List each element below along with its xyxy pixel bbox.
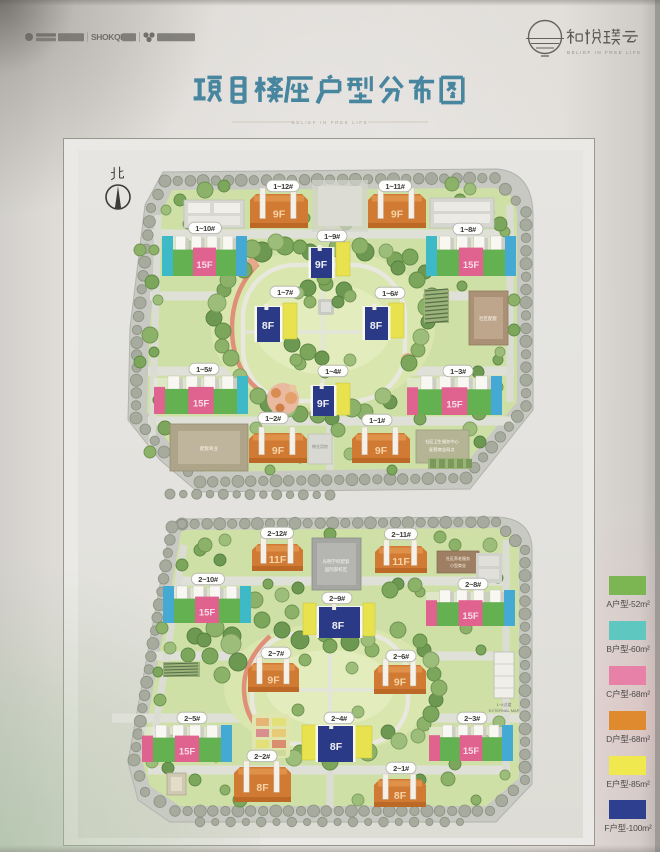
svg-text:1~8#: 1~8# <box>460 225 477 234</box>
svg-text:1~4#: 1~4# <box>325 367 342 376</box>
svg-text:9F: 9F <box>317 398 330 410</box>
svg-text:光明学校配套: 光明学校配套 <box>323 558 350 565</box>
svg-text:15F: 15F <box>193 399 210 410</box>
svg-text:15F: 15F <box>463 746 480 757</box>
svg-text:1~1#: 1~1# <box>369 416 386 425</box>
svg-text:社区配套: 社区配套 <box>479 315 497 322</box>
svg-text:1~12#: 1~12# <box>273 182 294 191</box>
svg-text:2~2#: 2~2# <box>254 752 271 761</box>
svg-text:8F: 8F <box>262 320 275 332</box>
svg-text:15F: 15F <box>199 608 216 619</box>
svg-text:1~10#: 1~10# <box>195 224 216 233</box>
svg-text:社区养老服务: 社区养老服务 <box>446 555 470 561</box>
svg-text:2~7#: 2~7# <box>268 649 285 658</box>
svg-text:2~11#: 2~11# <box>391 530 411 539</box>
svg-text:配套商业网点: 配套商业网点 <box>429 446 454 453</box>
svg-text:EXTERNAL MAP: EXTERNAL MAP <box>489 708 520 713</box>
svg-text:社区卫生服务中心: 社区卫生服务中心 <box>425 438 459 445</box>
svg-text:1~7#: 1~7# <box>277 288 294 297</box>
svg-text:1~3#: 1~3# <box>450 367 467 376</box>
svg-text:国际部校区: 国际部校区 <box>325 566 348 573</box>
svg-text:1~9#: 1~9# <box>324 232 341 241</box>
svg-text:15F: 15F <box>462 611 479 622</box>
svg-text:11F: 11F <box>269 554 287 566</box>
svg-text:配套商业: 配套商业 <box>200 445 218 452</box>
svg-text:9F: 9F <box>272 445 285 457</box>
svg-text:1~5#: 1~5# <box>196 365 213 374</box>
svg-text:2~8#: 2~8# <box>465 580 482 589</box>
svg-text:2~6#: 2~6# <box>393 652 410 661</box>
svg-text:8F: 8F <box>370 320 383 332</box>
svg-text:15F: 15F <box>196 260 213 271</box>
svg-text:11F: 11F <box>392 556 410 568</box>
svg-text:2~12#: 2~12# <box>267 529 288 538</box>
svg-text:1~4过渡: 1~4过渡 <box>497 701 512 707</box>
svg-text:15F: 15F <box>446 399 463 410</box>
svg-text:物业用房: 物业用房 <box>312 443 328 449</box>
svg-text:9F: 9F <box>273 208 286 220</box>
svg-text:9F: 9F <box>315 259 328 271</box>
svg-text:9F: 9F <box>375 445 388 457</box>
svg-text:1~11#: 1~11# <box>385 182 405 191</box>
svg-text:8F: 8F <box>332 620 345 632</box>
svg-text:8F: 8F <box>256 782 269 794</box>
svg-text:1~2#: 1~2# <box>265 414 282 423</box>
svg-text:2~5#: 2~5# <box>184 714 201 723</box>
svg-text:2~3#: 2~3# <box>464 714 481 723</box>
svg-text:15F: 15F <box>463 260 480 271</box>
svg-text:1~6#: 1~6# <box>382 289 399 298</box>
svg-text:2~4#: 2~4# <box>331 714 348 723</box>
svg-text:小型商业: 小型商业 <box>450 562 466 568</box>
svg-text:2~1#: 2~1# <box>393 764 410 773</box>
svg-text:9F: 9F <box>394 676 407 688</box>
svg-text:15F: 15F <box>179 747 196 758</box>
svg-text:2~9#: 2~9# <box>329 594 346 603</box>
svg-text:9F: 9F <box>267 674 280 686</box>
svg-text:8F: 8F <box>394 790 407 802</box>
svg-text:2~10#: 2~10# <box>198 575 219 584</box>
svg-text:8F: 8F <box>330 741 343 753</box>
svg-text:9F: 9F <box>391 208 404 220</box>
